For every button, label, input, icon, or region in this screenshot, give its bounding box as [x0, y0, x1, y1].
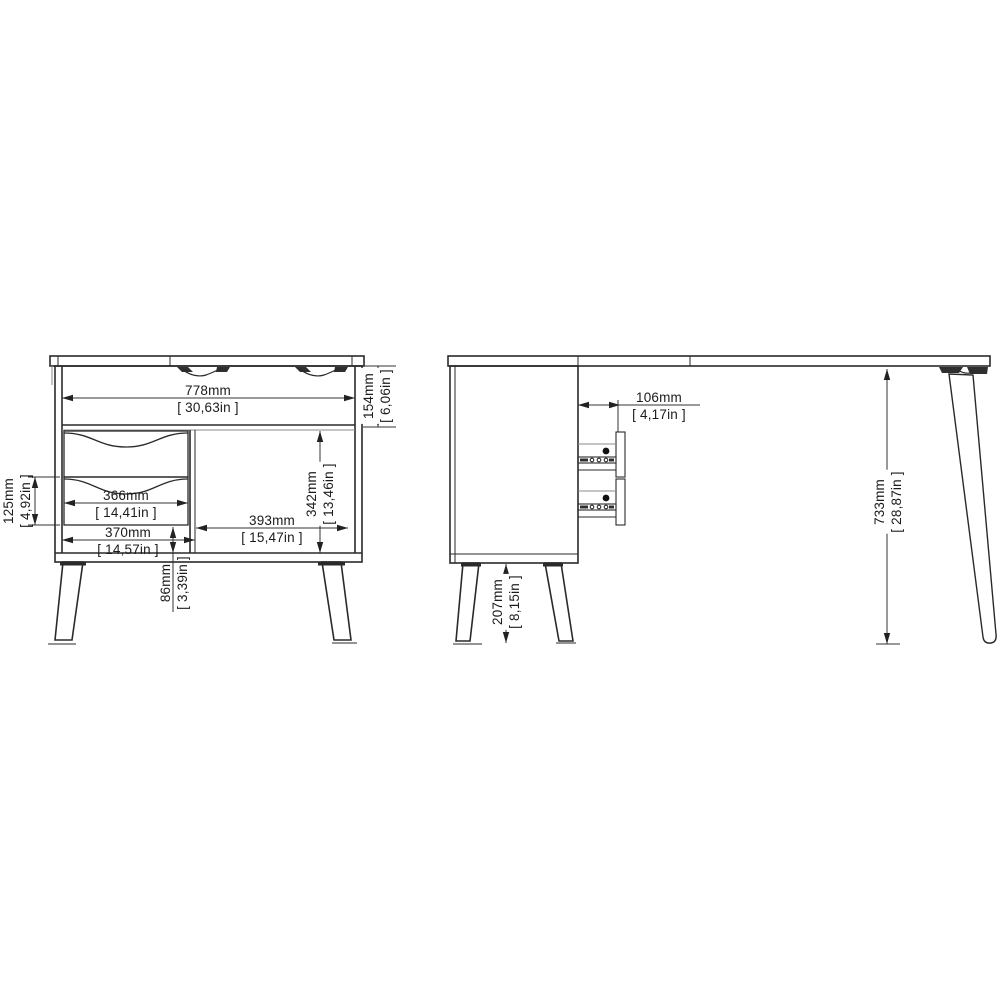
side-cabinet-panel	[450, 366, 578, 563]
dim-front-opening-width-mm: 370mm	[97, 524, 159, 541]
dim-side-drawer-inset-in: [ 4,17in ]	[632, 406, 686, 423]
dim-front-drawer-height: 125mm [ 4,92in ]	[0, 474, 34, 528]
side-leg-rear	[939, 367, 996, 643]
dim-side-leg-height: 207mm [ 8,15in ]	[489, 574, 523, 630]
dim-front-compartment-height-in: [ 13,46in ]	[320, 463, 337, 525]
front-leg-right	[318, 562, 357, 643]
dim-front-under-drawer-clearance-mm: 86mm	[157, 556, 174, 610]
dim-front-compartment-height-mm: 342mm	[303, 463, 320, 525]
dim-front-compartment-width: 393mm [ 15,47in ]	[241, 512, 303, 546]
dim-front-width-mm: 778mm	[177, 382, 239, 399]
front-desktop-bracket-left	[177, 367, 230, 376]
side-drawer-slide-top	[578, 432, 625, 477]
front-leg-left	[48, 562, 86, 644]
dim-front-drawer-width: 366mm [ 14,41in ]	[95, 487, 157, 521]
dim-front-under-drawer-clearance: 86mm [ 3,39in ]	[157, 556, 191, 610]
dim-front-top-section-height-in: [ 6,06in ]	[377, 369, 394, 423]
dim-side-leg-height-mm: 207mm	[489, 575, 506, 629]
dim-front-drawer-width-mm: 366mm	[95, 487, 157, 504]
dim-front-opening-width-in: [ 14,57in ]	[97, 541, 159, 558]
dim-front-opening-width: 370mm [ 14,57in ]	[97, 524, 159, 558]
dim-front-compartment-width-mm: 393mm	[241, 512, 303, 529]
dim-front-width: 778mm [ 30,63in ]	[177, 382, 239, 416]
dim-side-drawer-inset-mm: 106mm	[632, 389, 686, 406]
dim-front-compartment-width-in: [ 15,47in ]	[241, 529, 303, 546]
dim-side-desk-height-in: [ 28,87in ]	[888, 471, 905, 533]
dim-front-width-in: [ 30,63in ]	[177, 399, 239, 416]
side-view	[448, 356, 996, 644]
front-desktop	[50, 356, 364, 385]
side-leg-left	[453, 563, 482, 644]
dim-side-leg-height-in: [ 8,15in ]	[506, 575, 523, 629]
side-drawer-slide-bottom	[578, 479, 625, 525]
dim-front-top-section-height-mm: 154mm	[360, 369, 377, 423]
dim-front-drawer-height-in: [ 4,92in ]	[17, 474, 34, 528]
dim-side-desk-height-mm: 733mm	[871, 471, 888, 533]
dim-side-drawer-inset: 106mm [ 4,17in ]	[632, 389, 686, 423]
side-desktop	[448, 356, 990, 366]
dim-front-top-section-height: 154mm [ 6,06in ]	[360, 368, 394, 424]
dim-front-compartment-height: 342mm [ 13,46in ]	[303, 462, 337, 526]
dim-front-drawer-height-mm: 125mm	[0, 474, 17, 528]
dim-front-drawer-width-in: [ 14,41in ]	[95, 504, 157, 521]
side-leg-middle	[543, 563, 576, 643]
technical-dimension-drawing: 778mm [ 30,63in ] 154mm [ 6,06in ] 366mm…	[0, 0, 1000, 1000]
front-drawer-top	[64, 431, 188, 477]
dim-side-desk-height: 733mm [ 28,87in ]	[871, 470, 905, 534]
front-desktop-bracket-right	[295, 367, 348, 376]
dim-front-under-drawer-clearance-in: [ 3,39in ]	[174, 556, 191, 610]
